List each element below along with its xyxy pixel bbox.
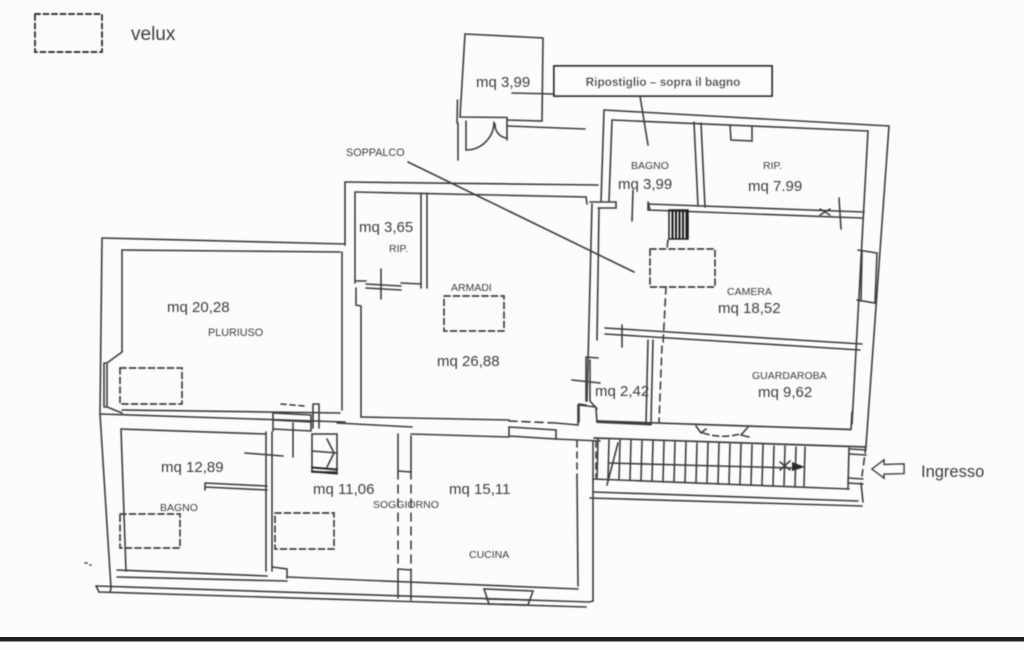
- svg-text:mq 20,28: mq 20,28: [167, 299, 230, 316]
- svg-text:mq 18,52: mq 18,52: [718, 300, 781, 317]
- svg-text:mq 2,42: mq 2,42: [595, 383, 649, 400]
- svg-text:mq 15,11: mq 15,11: [449, 481, 510, 498]
- svg-text:mq 3,99: mq 3,99: [476, 74, 530, 91]
- svg-text:Ripostiglio – sopra il bagno: Ripostiglio – sopra il bagno: [586, 75, 741, 89]
- svg-text:GUARDAROBA: GUARDAROBA: [752, 370, 827, 382]
- svg-text:BAGNO: BAGNO: [160, 502, 198, 514]
- svg-text:mq 9,62: mq 9,62: [758, 384, 812, 401]
- svg-text:RIP.: RIP.: [389, 243, 408, 255]
- svg-text:velux: velux: [131, 24, 176, 45]
- svg-text:CUCINA: CUCINA: [469, 549, 509, 561]
- svg-text:SOPPALCO: SOPPALCO: [346, 147, 405, 159]
- svg-text:CAMERA: CAMERA: [727, 286, 772, 298]
- svg-text:BAGNO: BAGNO: [631, 160, 669, 172]
- svg-text:PLURIUSO: PLURIUSO: [208, 327, 263, 339]
- svg-text:ARMADI: ARMADI: [451, 282, 492, 294]
- svg-text:mq 3,99: mq 3,99: [618, 176, 672, 193]
- svg-text:RIP.: RIP.: [763, 160, 782, 172]
- svg-text:mq 26,88: mq 26,88: [437, 353, 500, 370]
- svg-text:mq 7.99: mq 7.99: [748, 178, 802, 195]
- svg-text:SOGGIORNO: SOGGIORNO: [373, 499, 439, 511]
- svg-text:mq 3,65: mq 3,65: [359, 219, 413, 236]
- svg-text:mq 11,06: mq 11,06: [313, 481, 374, 498]
- svg-text:mq 12,89: mq 12,89: [161, 459, 224, 476]
- svg-text:Ingresso: Ingresso: [921, 463, 984, 481]
